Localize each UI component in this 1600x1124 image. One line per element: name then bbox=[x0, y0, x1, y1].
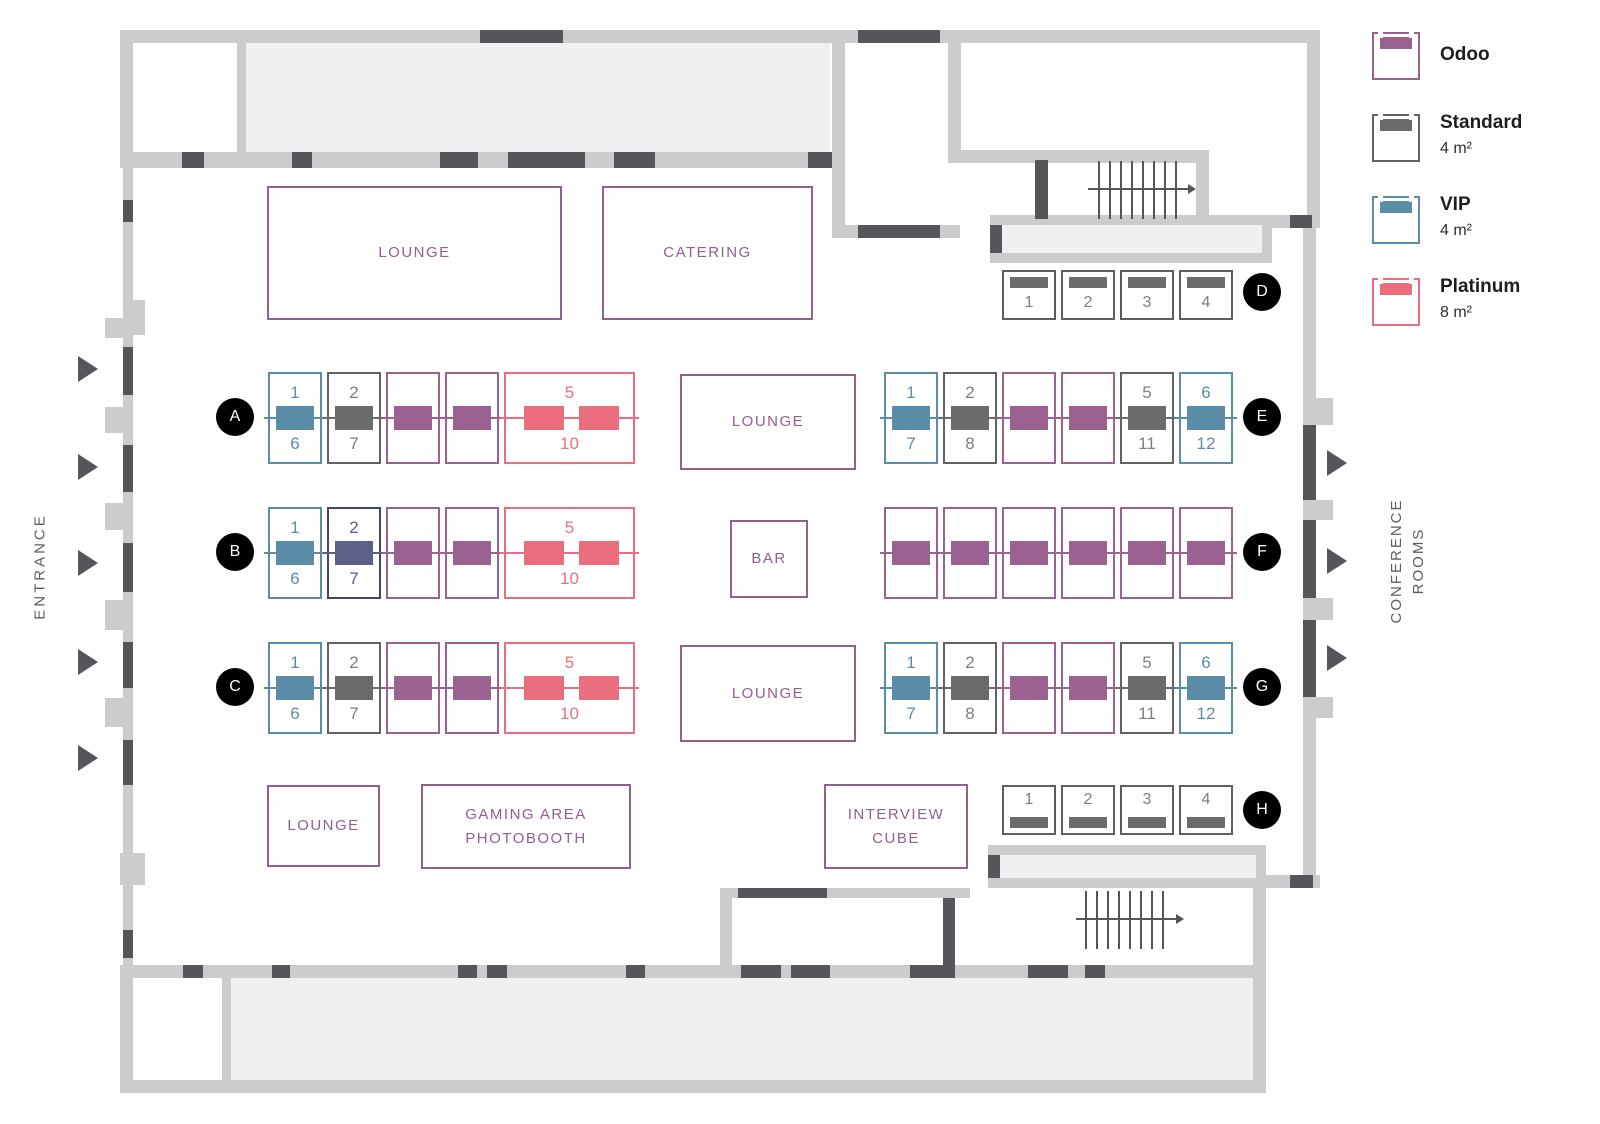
booth-A-1: 16 bbox=[268, 372, 322, 464]
row-marker-B: B bbox=[216, 533, 254, 571]
row-marker-H: H bbox=[1243, 791, 1281, 829]
booth-number-top: 1 bbox=[270, 519, 320, 536]
area-label: INTERVIEW bbox=[848, 803, 945, 827]
booth-number-top: 6 bbox=[1181, 384, 1231, 401]
booth-number-bottom: 7 bbox=[329, 435, 379, 452]
legend-odoo-label: Odoo bbox=[1440, 44, 1490, 66]
booth-B-4 bbox=[445, 507, 499, 599]
booth-number-top: 5 bbox=[1122, 384, 1172, 401]
booth-number-bottom: 7 bbox=[886, 705, 936, 722]
booth-desk bbox=[1069, 676, 1107, 700]
booth-number-bottom: 7 bbox=[329, 705, 379, 722]
area-label: CUBE bbox=[872, 827, 920, 851]
booth-desk bbox=[1187, 277, 1225, 288]
booth-number-top: 5 bbox=[506, 654, 633, 671]
row-marker-E: E bbox=[1243, 398, 1281, 436]
booth-number-top: 1 bbox=[270, 654, 320, 671]
booth-desk bbox=[394, 676, 432, 700]
pillar bbox=[105, 698, 123, 727]
door-segment bbox=[123, 445, 133, 492]
booth-desk bbox=[1187, 406, 1225, 430]
booth-number-bottom: 11 bbox=[1122, 435, 1172, 452]
door-segment bbox=[858, 30, 940, 43]
booth-G-4 bbox=[1061, 642, 1115, 734]
door-segment bbox=[1085, 965, 1105, 978]
door-segment bbox=[791, 965, 830, 978]
door-segment bbox=[1290, 875, 1313, 888]
booth-number: 1 bbox=[1004, 295, 1054, 311]
door-segment bbox=[123, 642, 133, 688]
booth-desk bbox=[453, 676, 491, 700]
booth-desk bbox=[1010, 541, 1048, 565]
booth-F-5 bbox=[1120, 507, 1174, 599]
booth-C-4 bbox=[445, 642, 499, 734]
stairs-bottom-arrow bbox=[1076, 918, 1176, 920]
booth-number-bottom: 10 bbox=[506, 435, 633, 452]
pillar bbox=[1303, 500, 1333, 520]
booth-number-top: 2 bbox=[329, 384, 379, 401]
pillar bbox=[1303, 697, 1333, 718]
booth-row-E: 1728511612 bbox=[884, 372, 1233, 464]
wall bbox=[222, 978, 231, 1080]
area-label: CATERING bbox=[663, 241, 751, 265]
booth-C-2: 27 bbox=[327, 642, 381, 734]
legend-platinum-label: Platinum bbox=[1440, 276, 1520, 298]
conference-rooms-line2: ROOMS bbox=[1408, 451, 1430, 671]
booth-desk bbox=[335, 676, 373, 700]
door-segment bbox=[808, 152, 832, 168]
booth-H-3: 3 bbox=[1120, 785, 1174, 835]
room-corridor-bottom bbox=[998, 855, 1256, 878]
door-segment bbox=[123, 200, 133, 222]
booth-row-C: 1627510 bbox=[268, 642, 635, 734]
booth-number-bottom: 8 bbox=[945, 705, 995, 722]
door-segment bbox=[487, 965, 507, 978]
legend-standard-label: Standard bbox=[1440, 112, 1522, 134]
booth-desk bbox=[453, 541, 491, 565]
booth-number-bottom: 7 bbox=[329, 570, 379, 587]
booth-H-4: 4 bbox=[1179, 785, 1233, 835]
door-segment bbox=[626, 965, 645, 978]
booth-E-6: 612 bbox=[1179, 372, 1233, 464]
door-segment bbox=[988, 855, 1000, 878]
door-segment bbox=[292, 152, 312, 168]
door-segment bbox=[738, 888, 827, 898]
legend-notch bbox=[1378, 30, 1383, 38]
booth-desk bbox=[1128, 541, 1166, 565]
area-lounge-center: LOUNGE bbox=[680, 374, 856, 470]
booth-number-bottom: 12 bbox=[1181, 705, 1231, 722]
booth-F-1 bbox=[884, 507, 938, 599]
entrance-label: ENTRANCE bbox=[32, 469, 49, 665]
booth-number-top: 1 bbox=[886, 654, 936, 671]
booth-A-5: 510 bbox=[504, 372, 635, 464]
door-segment bbox=[183, 965, 203, 978]
booth-F-4 bbox=[1061, 507, 1115, 599]
door-segment bbox=[182, 152, 204, 168]
booth-A-4 bbox=[445, 372, 499, 464]
booth-A-2: 27 bbox=[327, 372, 381, 464]
area-interview-cube: INTERVIEW CUBE bbox=[824, 784, 968, 869]
door-segment bbox=[741, 965, 781, 978]
door-segment bbox=[123, 930, 133, 958]
booth-desk bbox=[1187, 541, 1225, 565]
booth-desk bbox=[951, 676, 989, 700]
area-catering: CATERING bbox=[602, 186, 813, 320]
row-marker-D: D bbox=[1243, 273, 1281, 311]
wall bbox=[720, 898, 732, 968]
booth-E-1: 17 bbox=[884, 372, 938, 464]
entrance-arrow-icon bbox=[78, 454, 98, 480]
booth-G-2: 28 bbox=[943, 642, 997, 734]
legend-notch bbox=[1378, 194, 1383, 202]
door-segment bbox=[614, 152, 655, 168]
row-marker-A: A bbox=[216, 398, 254, 436]
booth-number: 1 bbox=[1004, 792, 1054, 808]
booth-F-6 bbox=[1179, 507, 1233, 599]
booth-desk bbox=[1069, 277, 1107, 288]
booth-desk bbox=[1069, 541, 1107, 565]
legend-standard-booth-icon bbox=[1372, 114, 1420, 162]
wall bbox=[120, 1080, 1266, 1093]
booth-desk bbox=[453, 406, 491, 430]
door-segment bbox=[1028, 965, 1068, 978]
booth-row-A: 1627510 bbox=[268, 372, 635, 464]
booth-number-top: 5 bbox=[506, 384, 633, 401]
booth-desk bbox=[524, 676, 564, 700]
legend-notch bbox=[1378, 276, 1383, 284]
booth-C-3 bbox=[386, 642, 440, 734]
legend-standard-size: 4 m² bbox=[1440, 140, 1472, 158]
area-bar: BAR bbox=[730, 520, 808, 598]
booth-B-2: 27 bbox=[327, 507, 381, 599]
legend-bar bbox=[1380, 119, 1412, 131]
booth-G-6: 612 bbox=[1179, 642, 1233, 734]
booth-number-bottom: 8 bbox=[945, 435, 995, 452]
row-marker-C: C bbox=[216, 668, 254, 706]
area-label: LOUNGE bbox=[732, 410, 804, 434]
booth-G-3 bbox=[1002, 642, 1056, 734]
area-lounge-top: LOUNGE bbox=[267, 186, 562, 320]
wall bbox=[120, 30, 133, 168]
legend-bar bbox=[1380, 37, 1412, 49]
door-segment bbox=[508, 152, 585, 168]
booth-number-top: 2 bbox=[945, 654, 995, 671]
booth-number: 3 bbox=[1122, 792, 1172, 808]
legend-bar bbox=[1380, 201, 1412, 213]
stairs-top-arrow bbox=[1088, 188, 1188, 190]
booth-desk bbox=[524, 541, 564, 565]
area-gaming-photobooth: GAMING AREA PHOTOBOOTH bbox=[421, 784, 631, 869]
area-label: LOUNGE bbox=[287, 814, 359, 838]
booth-desk bbox=[394, 406, 432, 430]
legend-notch bbox=[1409, 30, 1414, 38]
legend-notch bbox=[1409, 276, 1414, 284]
door-segment bbox=[858, 225, 940, 238]
booth-number-bottom: 12 bbox=[1181, 435, 1231, 452]
booth-number: 3 bbox=[1122, 295, 1172, 311]
booth-desk bbox=[1128, 676, 1166, 700]
booth-B-1: 16 bbox=[268, 507, 322, 599]
door-segment bbox=[1303, 425, 1316, 500]
booth-number: 2 bbox=[1063, 792, 1113, 808]
booth-number-top: 2 bbox=[329, 654, 379, 671]
booth-row-H: 1234 bbox=[1002, 785, 1233, 835]
pillar bbox=[120, 853, 145, 885]
booth-E-5: 511 bbox=[1120, 372, 1174, 464]
pillar bbox=[105, 407, 123, 433]
booth-desk bbox=[579, 676, 619, 700]
pillar bbox=[133, 300, 145, 335]
wall bbox=[120, 30, 1320, 43]
booth-row-D: 1234 bbox=[1002, 270, 1233, 320]
booth-number: 2 bbox=[1063, 295, 1113, 311]
floor-plan: ENTRANCE CONFERENCE ROOMS LOUNGE CATERIN… bbox=[0, 0, 1600, 1124]
booth-number-top: 6 bbox=[1181, 654, 1231, 671]
booth-number: 4 bbox=[1181, 295, 1231, 311]
wall bbox=[832, 30, 845, 238]
room-top-strip bbox=[246, 43, 830, 152]
wall bbox=[120, 965, 133, 1093]
entrance-arrow-icon bbox=[78, 745, 98, 771]
booth-number-bottom: 6 bbox=[270, 705, 320, 722]
legend-bar bbox=[1380, 283, 1412, 295]
booth-number-bottom: 10 bbox=[506, 570, 633, 587]
wall bbox=[1307, 30, 1320, 215]
booth-number-top: 5 bbox=[1122, 654, 1172, 671]
legend-odoo-booth-icon bbox=[1372, 32, 1420, 80]
booth-number-bottom: 6 bbox=[270, 435, 320, 452]
pillar bbox=[105, 318, 123, 338]
row-marker-F: F bbox=[1243, 533, 1281, 571]
door-segment bbox=[458, 965, 477, 978]
booth-B-3 bbox=[386, 507, 440, 599]
wall bbox=[948, 43, 961, 150]
booth-desk bbox=[1187, 817, 1225, 828]
booth-row-B: 1627510 bbox=[268, 507, 635, 599]
door-segment bbox=[272, 965, 290, 978]
booth-D-4: 4 bbox=[1179, 270, 1233, 320]
booth-desk bbox=[394, 541, 432, 565]
pillar bbox=[1303, 398, 1333, 425]
door-segment bbox=[123, 740, 133, 785]
legend-notch bbox=[1378, 112, 1383, 120]
legend-platinum-booth-icon bbox=[1372, 278, 1420, 326]
legend-vip-size: 4 m² bbox=[1440, 222, 1472, 240]
wall bbox=[237, 43, 246, 152]
wall bbox=[1253, 888, 1266, 1093]
booth-number: 4 bbox=[1181, 792, 1231, 808]
booth-desk bbox=[335, 406, 373, 430]
booth-C-5: 510 bbox=[504, 642, 635, 734]
booth-B-5: 510 bbox=[504, 507, 635, 599]
booth-number-bottom: 6 bbox=[270, 570, 320, 587]
booth-E-3 bbox=[1002, 372, 1056, 464]
booth-D-3: 3 bbox=[1120, 270, 1174, 320]
conference-arrow-icon bbox=[1327, 645, 1347, 671]
door-segment bbox=[123, 543, 133, 592]
conference-arrow-icon bbox=[1327, 450, 1347, 476]
booth-desk bbox=[579, 406, 619, 430]
area-label: BAR bbox=[751, 547, 786, 571]
booth-D-1: 1 bbox=[1002, 270, 1056, 320]
room-bottom-strip bbox=[231, 978, 1253, 1080]
pillar bbox=[1303, 598, 1333, 620]
booth-desk bbox=[1128, 406, 1166, 430]
booth-E-4 bbox=[1061, 372, 1115, 464]
booth-H-1: 1 bbox=[1002, 785, 1056, 835]
booth-number-top: 5 bbox=[506, 519, 633, 536]
booth-desk bbox=[951, 406, 989, 430]
booth-desk bbox=[276, 406, 314, 430]
booth-desk bbox=[524, 406, 564, 430]
booth-number-top: 2 bbox=[329, 519, 379, 536]
door-segment bbox=[1290, 215, 1312, 228]
legend-notch bbox=[1409, 194, 1414, 202]
booth-desk bbox=[276, 541, 314, 565]
area-lounge-center-south: LOUNGE bbox=[680, 645, 856, 742]
door-segment bbox=[910, 965, 949, 978]
room-corridor-top bbox=[1000, 225, 1262, 253]
booth-desk bbox=[276, 676, 314, 700]
booth-number-bottom: 7 bbox=[886, 435, 936, 452]
stairs-top bbox=[1098, 161, 1177, 219]
booth-desk bbox=[1010, 406, 1048, 430]
booth-desk bbox=[335, 541, 373, 565]
conference-arrow-icon bbox=[1327, 548, 1347, 574]
booth-desk bbox=[951, 541, 989, 565]
conference-rooms-label: CONFERENCE ROOMS bbox=[1386, 451, 1430, 671]
booth-G-5: 511 bbox=[1120, 642, 1174, 734]
entrance-arrow-icon bbox=[78, 356, 98, 382]
booth-D-2: 2 bbox=[1061, 270, 1115, 320]
stairs-bottom bbox=[1085, 891, 1164, 949]
booth-desk bbox=[1069, 406, 1107, 430]
area-label: LOUNGE bbox=[732, 682, 804, 706]
booth-desk bbox=[892, 676, 930, 700]
area-label: PHOTOBOOTH bbox=[465, 827, 586, 851]
booth-C-1: 16 bbox=[268, 642, 322, 734]
door-segment bbox=[1303, 520, 1316, 598]
booth-desk bbox=[1187, 676, 1225, 700]
legend-platinum-size: 8 m² bbox=[1440, 304, 1472, 322]
booth-number-top: 2 bbox=[945, 384, 995, 401]
row-marker-G: G bbox=[1243, 668, 1281, 706]
area-label: LOUNGE bbox=[378, 241, 450, 265]
booth-desk bbox=[1128, 277, 1166, 288]
entrance-arrow-icon bbox=[78, 649, 98, 675]
door-segment bbox=[440, 152, 478, 168]
pillar bbox=[105, 600, 123, 630]
legend-vip-label: VIP bbox=[1440, 194, 1471, 216]
booth-F-3 bbox=[1002, 507, 1056, 599]
booth-number-top: 1 bbox=[270, 384, 320, 401]
booth-E-2: 28 bbox=[943, 372, 997, 464]
booth-desk bbox=[1010, 817, 1048, 828]
pillar bbox=[105, 503, 123, 530]
booth-desk bbox=[892, 406, 930, 430]
booth-G-1: 17 bbox=[884, 642, 938, 734]
door-segment bbox=[990, 225, 1002, 253]
booth-number-bottom: 10 bbox=[506, 705, 633, 722]
booth-F-2 bbox=[943, 507, 997, 599]
booth-number-top: 1 bbox=[886, 384, 936, 401]
booth-desk bbox=[892, 541, 930, 565]
conference-rooms-line1: CONFERENCE bbox=[1386, 451, 1408, 671]
area-label: GAMING AREA bbox=[465, 803, 587, 827]
booth-row-F bbox=[884, 507, 1233, 599]
booth-desk bbox=[1010, 277, 1048, 288]
booth-number-bottom: 11 bbox=[1122, 705, 1172, 722]
booth-desk bbox=[1069, 817, 1107, 828]
booth-H-2: 2 bbox=[1061, 785, 1115, 835]
booth-A-3 bbox=[386, 372, 440, 464]
booth-desk bbox=[1128, 817, 1166, 828]
door-segment bbox=[123, 347, 133, 395]
booth-row-G: 1728511612 bbox=[884, 642, 1233, 734]
door-segment bbox=[480, 30, 563, 43]
area-lounge-south-west: LOUNGE bbox=[267, 785, 380, 867]
entrance-arrow-icon bbox=[78, 550, 98, 576]
booth-desk bbox=[579, 541, 619, 565]
legend-vip-booth-icon bbox=[1372, 196, 1420, 244]
booth-desk bbox=[1010, 676, 1048, 700]
door-segment bbox=[1303, 620, 1316, 697]
legend-notch bbox=[1409, 112, 1414, 120]
door-segment bbox=[1035, 160, 1048, 219]
